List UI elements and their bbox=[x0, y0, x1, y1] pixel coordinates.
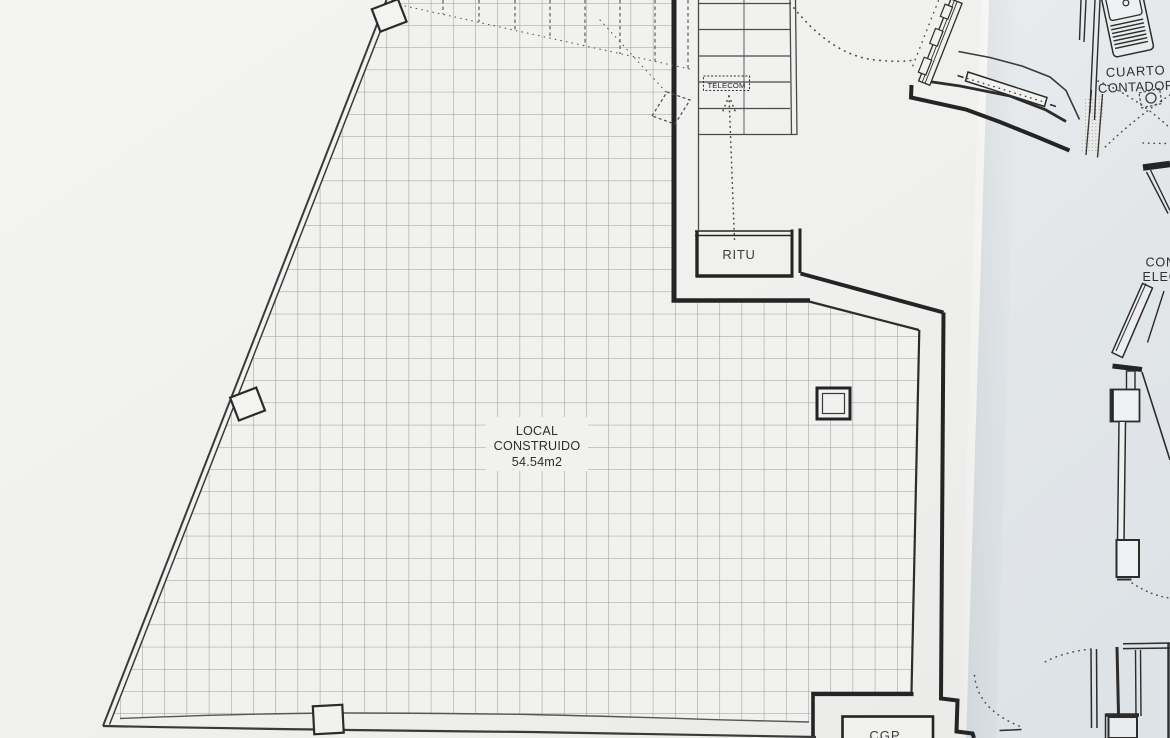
svg-text:RITU: RITU bbox=[722, 247, 755, 262]
svg-text:54.54m2: 54.54m2 bbox=[512, 455, 562, 469]
svg-text:CON: CON bbox=[1146, 256, 1170, 270]
svg-text:CONTADOR: CONTADOR bbox=[1098, 78, 1170, 96]
svg-text:LOCAL: LOCAL bbox=[516, 424, 558, 438]
svg-text:ELEC: ELEC bbox=[1143, 270, 1170, 284]
svg-text:CGP: CGP bbox=[869, 728, 900, 738]
svg-text:TELECOM: TELECOM bbox=[707, 81, 745, 90]
svg-text:CONSTRUIDO: CONSTRUIDO bbox=[494, 439, 581, 453]
